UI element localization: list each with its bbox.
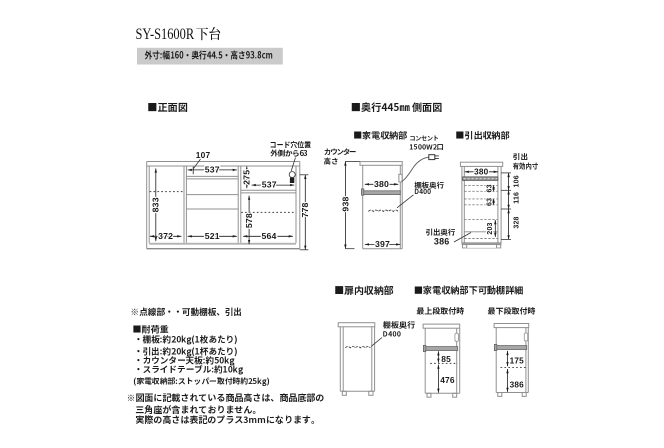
svg-text:203: 203 — [487, 222, 494, 234]
svg-text:最上段取付時: 最上段取付時 — [416, 306, 464, 317]
svg-text:有効内寸: 有効内寸 — [513, 161, 539, 172]
svg-text:476: 476 — [440, 375, 455, 385]
svg-text:833: 833 — [151, 197, 161, 212]
svg-text:外寸:幅160・奥行44.5・高さ93.8cm: 外寸:幅160・奥行44.5・高さ93.8cm — [145, 48, 274, 62]
svg-text:実際の高さは表記のプラス3mmになります。: 実際の高さは表記のプラス3mmになります。 — [135, 413, 320, 426]
svg-text:高さ: 高さ — [324, 156, 339, 167]
svg-text:175: 175 — [510, 356, 525, 365]
svg-text:■奥行445㎜ 側面図: ■奥行445㎜ 側面図 — [351, 99, 443, 114]
svg-text:85: 85 — [441, 354, 451, 364]
svg-text:63: 63 — [486, 198, 493, 206]
svg-text:578: 578 — [244, 213, 254, 228]
svg-text:386: 386 — [434, 236, 450, 246]
svg-text:537: 537 — [262, 180, 277, 190]
svg-text:380: 380 — [374, 179, 389, 189]
svg-text:63: 63 — [486, 184, 493, 192]
svg-text:SY-S1600R: SY-S1600R — [136, 25, 195, 43]
svg-text:■扉内収納部: ■扉内収納部 — [334, 283, 393, 297]
svg-text:最下段取付時: 最下段取付時 — [487, 306, 535, 317]
svg-text:D400: D400 — [383, 329, 402, 339]
svg-text:(家電収納部:ストッパー取付時約25kg): (家電収納部:ストッパー取付時約25kg) — [133, 376, 269, 387]
svg-text:■家電収納部: ■家電収納部 — [353, 129, 408, 142]
svg-text:386: 386 — [510, 380, 525, 389]
svg-text:D400: D400 — [414, 187, 431, 197]
svg-text:275: 275 — [242, 170, 252, 185]
svg-text:外側から63: 外側から63 — [269, 148, 308, 159]
svg-text:・棚板:約20kg(1枚あたり): ・棚板:約20kg(1枚あたり) — [134, 333, 237, 345]
svg-text:※点線部・・可動棚板、引出: ※点線部・・可動棚板、引出 — [131, 306, 243, 318]
svg-text:■正面図: ■正面図 — [147, 99, 188, 114]
svg-text:778: 778 — [300, 202, 310, 217]
svg-text:380: 380 — [474, 167, 489, 176]
svg-text:1500W2口: 1500W2口 — [409, 142, 444, 152]
svg-text:372: 372 — [158, 231, 173, 241]
svg-text:938: 938 — [340, 196, 350, 211]
svg-text:397: 397 — [375, 239, 390, 249]
svg-text:下台: 下台 — [196, 26, 222, 43]
svg-text:564: 564 — [261, 231, 276, 241]
svg-text:537: 537 — [205, 165, 220, 175]
svg-text:521: 521 — [205, 231, 220, 241]
svg-text:116: 116 — [513, 192, 520, 204]
svg-text:328: 328 — [513, 216, 520, 228]
svg-text:106: 106 — [513, 175, 520, 187]
svg-text:コンセント: コンセント — [409, 134, 438, 143]
svg-text:■引出収納部: ■引出収納部 — [455, 129, 510, 142]
svg-text:・スライドテーブル:約10kg: ・スライドテーブル:約10kg — [134, 364, 244, 376]
svg-text:107: 107 — [196, 150, 211, 160]
svg-text:■家電収納部下可動棚詳細: ■家電収納部下可動棚詳細 — [414, 283, 524, 297]
